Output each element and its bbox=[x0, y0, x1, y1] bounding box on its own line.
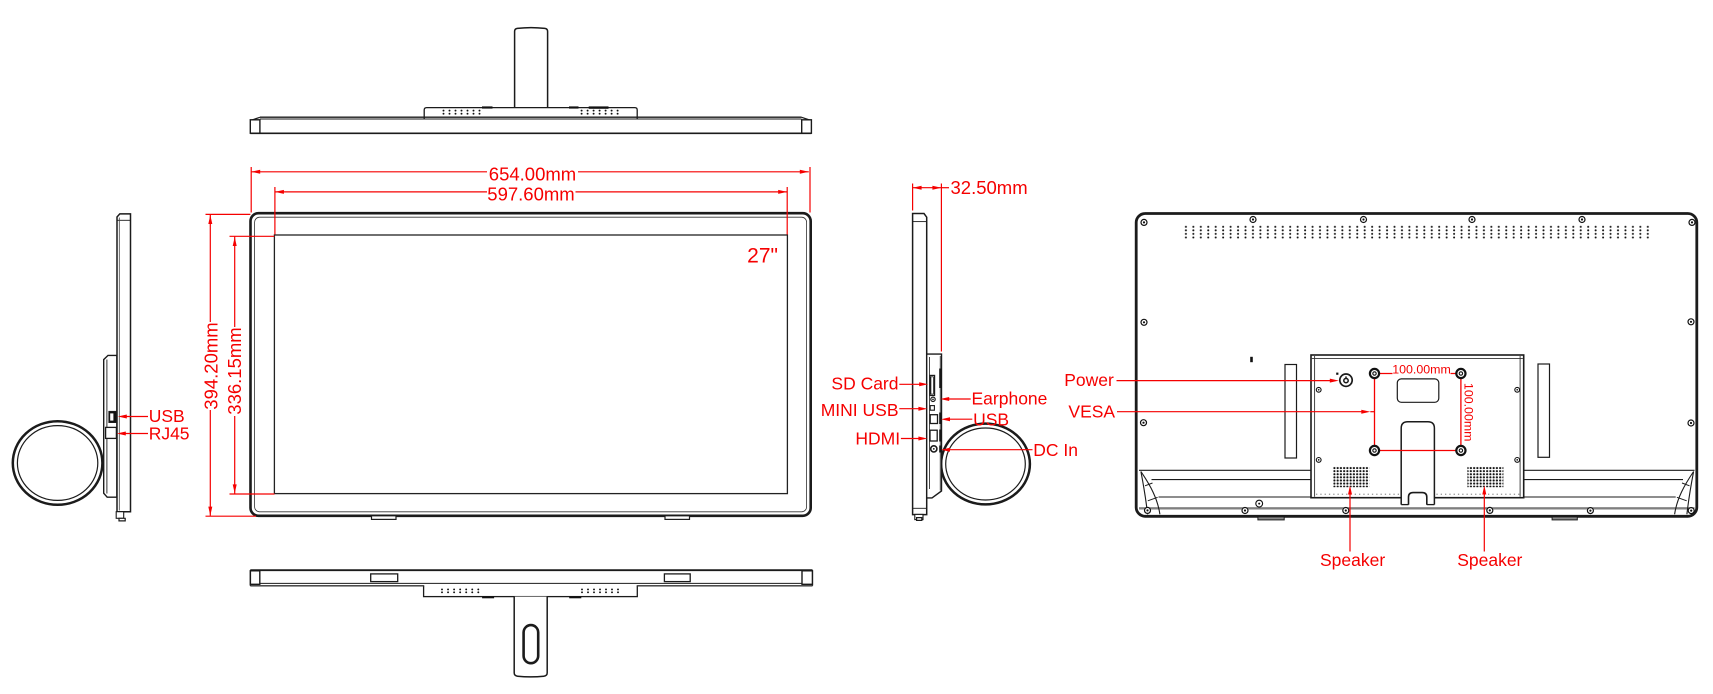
svg-text:Speaker: Speaker bbox=[1457, 550, 1522, 570]
svg-text:HDMI: HDMI bbox=[855, 429, 900, 449]
svg-text:VESA: VESA bbox=[1068, 401, 1115, 421]
svg-text:MINI USB: MINI USB bbox=[821, 400, 899, 420]
svg-text:Speaker: Speaker bbox=[1320, 550, 1385, 570]
svg-text:RJ45: RJ45 bbox=[149, 423, 190, 443]
svg-text:100.00mm: 100.00mm bbox=[1392, 362, 1451, 376]
svg-text:SD Card: SD Card bbox=[831, 374, 898, 394]
svg-text:USB: USB bbox=[973, 410, 1009, 430]
svg-text:336.15mm: 336.15mm bbox=[224, 327, 245, 414]
svg-text:DC In: DC In bbox=[1033, 440, 1078, 460]
svg-text:Power: Power bbox=[1064, 370, 1114, 390]
svg-text:597.60mm: 597.60mm bbox=[487, 184, 574, 205]
svg-text:394.20mm: 394.20mm bbox=[200, 322, 221, 409]
svg-text:654.00mm: 654.00mm bbox=[489, 164, 576, 185]
svg-text:27": 27" bbox=[747, 245, 778, 268]
svg-text:32.50mm: 32.50mm bbox=[951, 177, 1028, 198]
svg-text:Earphone: Earphone bbox=[972, 389, 1048, 409]
svg-text:100.00mm: 100.00mm bbox=[1462, 383, 1476, 442]
